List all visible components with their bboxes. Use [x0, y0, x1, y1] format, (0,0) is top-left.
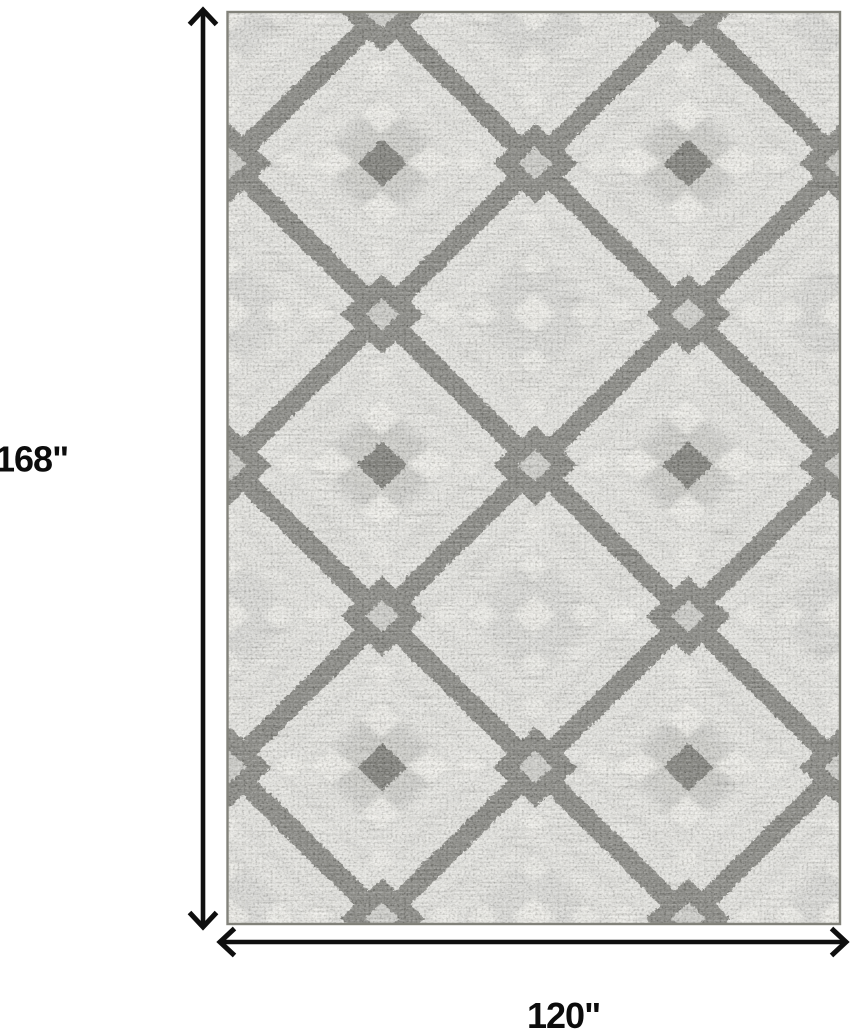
svg-text:168": 168"	[0, 439, 68, 480]
svg-text:120": 120"	[527, 995, 600, 1029]
